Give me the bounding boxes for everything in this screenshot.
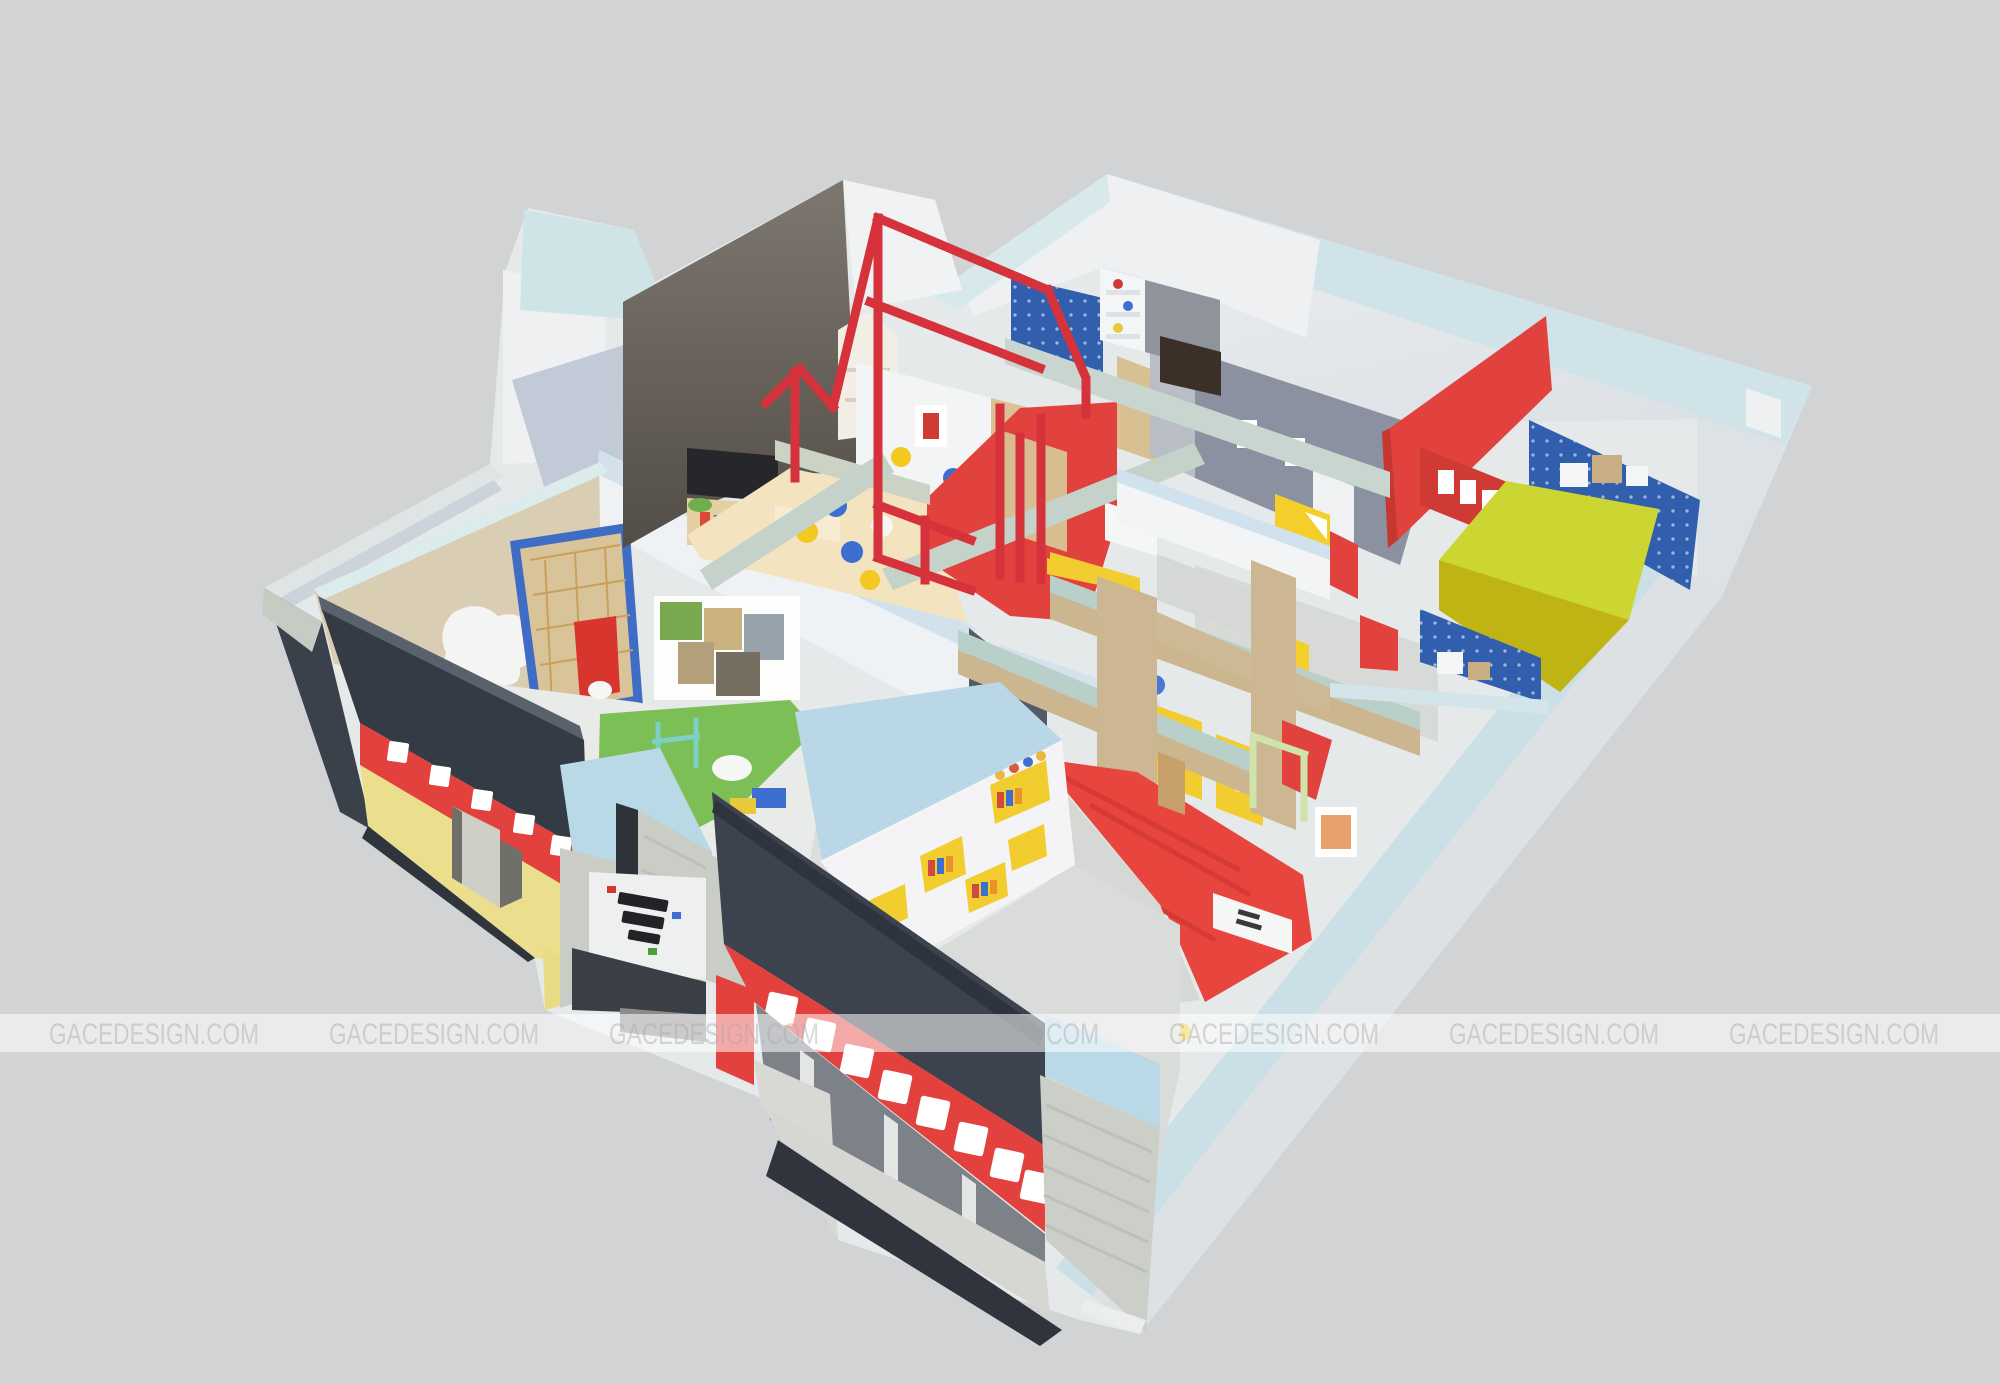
svg-text:GACEDESIGN.COM: GACEDESIGN.COM — [1729, 1018, 1939, 1051]
svg-text:GACEDESIGN.COM: GACEDESIGN.COM — [609, 1018, 819, 1051]
svg-text:GACEDESIGN.COM: GACEDESIGN.COM — [889, 1018, 1099, 1051]
svg-text:GACEDESIGN.COM: GACEDESIGN.COM — [49, 1018, 259, 1051]
svg-text:GACEDESIGN.COM: GACEDESIGN.COM — [1169, 1018, 1379, 1051]
svg-text:GACEDESIGN.COM: GACEDESIGN.COM — [329, 1018, 539, 1051]
svg-text:GACEDESIGN.COM: GACEDESIGN.COM — [1449, 1018, 1659, 1051]
